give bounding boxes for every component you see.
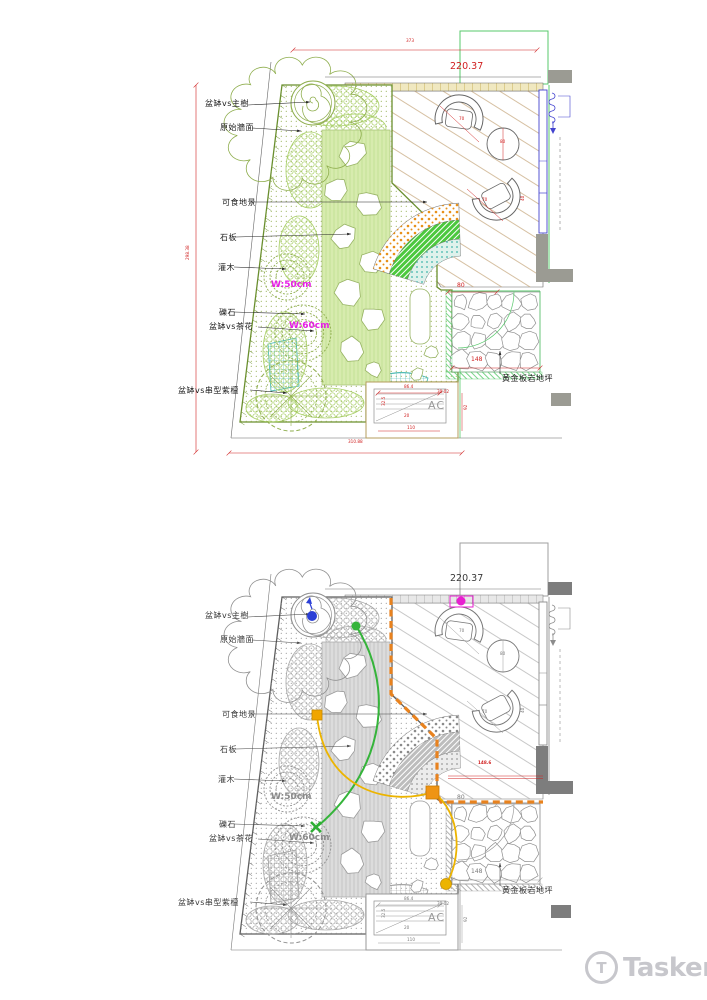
dim-table: 80 [500, 140, 505, 144]
watermark: T Tasker [585, 951, 707, 984]
dim-slate-width-2: 80 [457, 795, 465, 801]
dim-ac-height: 92 [464, 405, 468, 410]
label-w60: W:60cm [289, 322, 330, 331]
label-camellia: 盆缽vs茶花 [209, 323, 253, 331]
dim-table-2: 80 [500, 652, 505, 656]
label-ac: AC [428, 400, 445, 411]
label-edible-2: 可食地景 [222, 711, 256, 719]
dim-ac-width-2: 86.4 [404, 897, 413, 901]
label-edible: 可食地景 [222, 199, 256, 207]
label-gravel-2: 礫石 [219, 821, 236, 829]
dim-overall-top: 373 [406, 39, 414, 43]
label-ac-2: AC [428, 912, 445, 923]
dim-slate-length-2: 148 [471, 869, 482, 875]
label-stone-slab: 石板 [220, 234, 237, 242]
dim-deck-width: 220.37 [450, 62, 483, 72]
label-original-wall: 原始牆面 [220, 124, 254, 132]
label-camellia-2: 盆缽vs茶花 [209, 835, 253, 843]
label-wisteria: 盆缽vs串型紫檀 [178, 387, 239, 395]
dim-slate-width: 80 [457, 283, 465, 289]
label-main-tree: 盆缽vs主樹 [205, 100, 249, 108]
site-plan-colored [194, 31, 573, 455]
watermark-letter: T [596, 959, 606, 977]
dim-chair2-2: 70 [482, 710, 487, 714]
watermark-brand: Tasker [623, 953, 707, 983]
dim-ac-bottom: 110 [407, 426, 415, 430]
label-golden-slate: 黃金板岩地坪 [502, 375, 553, 383]
dim-ac-offset: 20 [404, 414, 409, 418]
dim-chair2: 70 [482, 198, 487, 202]
dim-ac-width: 86.4 [404, 385, 413, 389]
label-golden-slate-2: 黃金板岩地坪 [502, 887, 553, 895]
dim-deck-depth-red: 148.6 [478, 761, 491, 765]
label-gravel: 礫石 [219, 309, 236, 317]
watermark-logo-icon: T [585, 951, 618, 984]
label-wisteria-2: 盆缽vs串型紫檀 [178, 899, 239, 907]
label-w50-2: W:50cm [271, 793, 312, 802]
dim-ac-side: 32.5 [382, 397, 386, 406]
label-shrub: 灌木 [218, 264, 235, 272]
dim-chair1-2: 70 [459, 629, 464, 633]
page: 373 220.37 298.38 310.88 盆缽vs主樹 原始牆面 可食地… [0, 0, 707, 1000]
dim-clearance-2: 40 [521, 708, 525, 713]
dim-ac-offset-2: 20 [404, 926, 409, 930]
dim-ac-inner-2: 30.02 [437, 902, 449, 906]
dim-slate-length: 148 [471, 357, 482, 363]
label-original-wall-2: 原始牆面 [220, 636, 254, 644]
dim-ac-bottom-2: 110 [407, 938, 415, 942]
plan-canvas [0, 0, 707, 1000]
label-shrub-2: 灌木 [218, 776, 235, 784]
dim-ac-side-2: 32.5 [382, 909, 386, 918]
dim-deck-width-2: 220.37 [450, 574, 483, 584]
dim-ac-height-2: 92 [464, 917, 468, 922]
dim-site-width: 310.88 [348, 440, 363, 444]
dim-clearance: 40 [521, 196, 525, 201]
dim-ac-inner: 30.02 [437, 390, 449, 394]
label-main-tree-2: 盆缽vs主樹 [205, 612, 249, 620]
dim-chair1: 70 [459, 117, 464, 121]
label-stone-slab-2: 石板 [220, 746, 237, 754]
label-w60-2: W:60cm [289, 834, 330, 843]
dim-site-height: 298.38 [186, 245, 190, 260]
label-w50: W:50cm [271, 281, 312, 290]
